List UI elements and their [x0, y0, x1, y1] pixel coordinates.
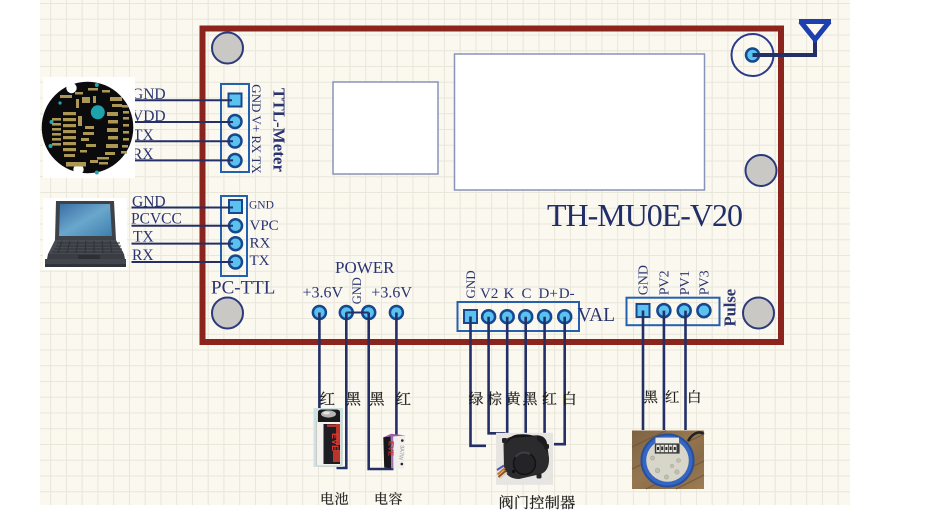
svg-text:VAL: VAL — [578, 305, 616, 326]
svg-text:RX: RX — [250, 236, 271, 252]
svg-text:GND V+ RX TX: GND V+ RX TX — [249, 84, 264, 174]
svg-text:D-: D- — [559, 286, 575, 302]
svg-text:PC-TTL: PC-TTL — [211, 278, 275, 299]
svg-text:GND: GND — [350, 277, 364, 304]
svg-text:D+: D+ — [539, 286, 558, 302]
svg-text:RX: RX — [132, 146, 154, 163]
svg-text:GND: GND — [249, 200, 274, 212]
svg-text:V2: V2 — [480, 286, 498, 302]
svg-text:GND: GND — [463, 270, 478, 298]
svg-text:K: K — [504, 286, 515, 302]
svg-text:VPC: VPC — [250, 218, 279, 234]
svg-text:PV3: PV3 — [698, 270, 713, 295]
svg-text:GND: GND — [132, 86, 166, 103]
svg-text:TTL-Meter: TTL-Meter — [270, 88, 289, 172]
svg-text:EVE: EVE — [386, 441, 396, 456]
svg-text:Pulse: Pulse — [721, 289, 740, 327]
svg-text:PV2: PV2 — [658, 270, 673, 295]
svg-text:C: C — [522, 286, 532, 302]
svg-text:GND: GND — [637, 265, 652, 295]
svg-text:+3.6V: +3.6V — [303, 284, 344, 301]
svg-text:PCVCC: PCVCC — [131, 210, 182, 227]
svg-text:TX: TX — [250, 253, 270, 269]
svg-text:EVE: EVE — [330, 433, 340, 451]
svg-text:+3.6V: +3.6V — [371, 284, 412, 301]
svg-text:POWER: POWER — [335, 258, 395, 277]
svg-text:TH-MU0E-V20: TH-MU0E-V20 — [547, 197, 743, 233]
svg-text:PV1: PV1 — [678, 270, 693, 295]
svg-text:TX: TX — [133, 127, 154, 144]
svg-text:RX: RX — [132, 247, 154, 264]
svg-text:VDD: VDD — [132, 108, 166, 125]
svg-text:TX: TX — [133, 229, 154, 246]
svg-text:GND: GND — [132, 193, 166, 210]
